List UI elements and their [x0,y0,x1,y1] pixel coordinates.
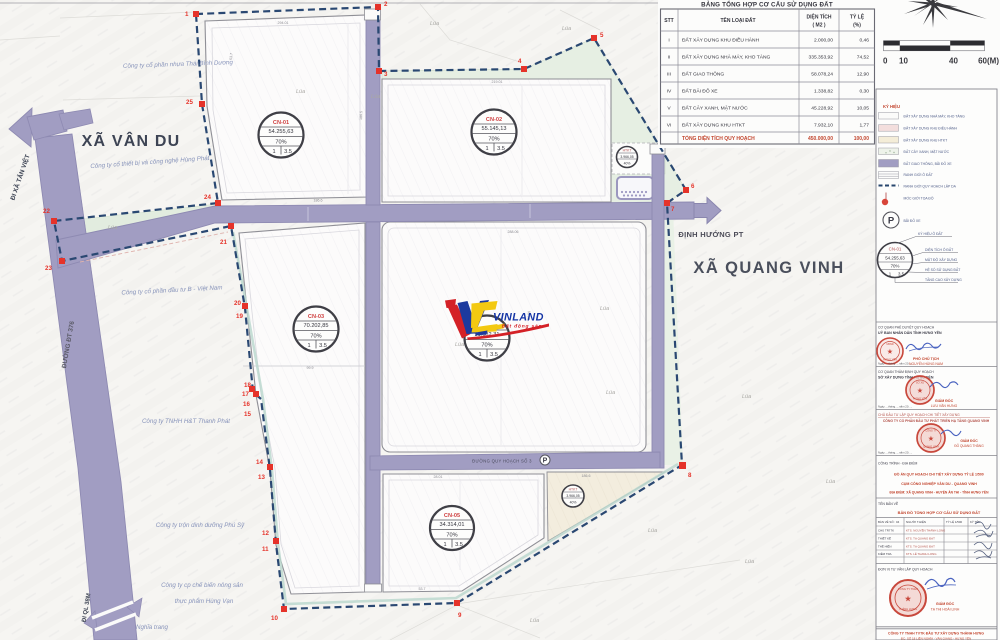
svg-text:ĐẤT XÂY DỰNG NHÀ MÁY, KHO TÀNG: ĐẤT XÂY DỰNG NHÀ MÁY, KHO TÀNG [904,115,966,119]
svg-text:20: 20 [234,300,241,307]
svg-text:70%: 70% [481,343,492,349]
svg-text:VINLAND: VINLAND [493,312,544,324]
svg-text:TÊN LOẠI ĐẤT: TÊN LOẠI ĐẤT [721,16,756,24]
svg-text:II: II [668,55,671,61]
svg-text:KÝ HIỆU: KÝ HIỆU [883,104,900,109]
svg-text:4: 4 [518,58,522,65]
svg-text:ĐỊA ĐIỂM: XÃ QUANG VINH - HUYỆ: ĐỊA ĐIỂM: XÃ QUANG VINH - HUYỆN ÂN THI -… [890,490,990,495]
svg-text:CỤM CÔNG NGHIỆP VÂN DU - QUANG: CỤM CÔNG NGHIỆP VÂN DU - QUANG VINH [901,481,977,486]
svg-text:3.5: 3.5 [898,272,905,277]
svg-text:45.228,92: 45.228,92 [811,106,833,112]
svg-text:ĐỒ ÁN QUY HOẠCH CHI TIẾT XÂY D: ĐỒ ÁN QUY HOẠCH CHI TIẾT XÂY DỰNG TỶ LỆ … [894,472,984,477]
svg-text:ĐẤT GIAO THÔNG: ĐẤT GIAO THÔNG [682,71,724,78]
svg-text:ĐƠN VỊ TƯ VẤN LẬP QUY HOẠCH: ĐƠN VỊ TƯ VẤN LẬP QUY HOẠCH [878,568,933,572]
svg-text:Lúa: Lúa [600,306,609,312]
svg-text:RANH GIỚI Ô ĐẤT: RANH GIỚI Ô ĐẤT [904,172,933,177]
svg-text:3.5: 3.5 [497,146,505,152]
svg-text:BẢN ĐỒ TỔNG HỢP CƠ CẤU SỬ DỤNG: BẢN ĐỒ TỔNG HỢP CƠ CẤU SỬ DỤNG ĐẤT [898,510,981,515]
svg-text:P: P [543,458,548,465]
svg-text:Lúa: Lúa [648,528,657,534]
svg-text:HTKT: HTKT [623,149,632,153]
svg-text:DIỆN TÍCH: DIỆN TÍCH [807,13,832,21]
svg-text:11: 11 [262,546,269,553]
svg-text:Lúa: Lúa [742,394,751,400]
svg-text:60(M): 60(M) [978,57,999,66]
svg-text:ĐỊNH HƯỚNG PT: ĐỊNH HƯỚNG PT [678,230,743,239]
svg-text:Ngày.....tháng.....năm 20.....: Ngày.....tháng.....năm 20..... [878,362,913,366]
svg-text:TỔNG DIỆN TÍCH QUY HOẠCH: TỔNG DIỆN TÍCH QUY HOẠCH [682,134,755,142]
svg-text:9: 9 [458,612,462,619]
svg-text:186.6: 186.6 [582,474,591,478]
svg-text:2: 2 [384,1,388,8]
svg-text:( M2 ): ( M2 ) [812,23,825,29]
svg-text:Công ty trộn dinh dưỡng Phú Sỹ: Công ty trộn dinh dưỡng Phú Sỹ [156,522,245,529]
svg-text:TỶ LỆ 1/500: TỶ LỆ 1/500 [946,519,962,524]
svg-text:Lúa: Lúa [606,390,615,396]
svg-text:MỐC GIỚI TỌA ĐỘ: MỐC GIỚI TỌA ĐỘ [904,196,934,201]
svg-text:0: 0 [883,57,888,66]
svg-text:5: 5 [600,32,604,39]
svg-text:1: 1 [443,542,446,548]
svg-text:TẦNG CAO XÂY DỰNG: TẦNG CAO XÂY DỰNG [925,278,962,282]
svg-text:8: 8 [688,472,692,479]
svg-text:DIỆN TÍCH Ô ĐẤT: DIỆN TÍCH Ô ĐẤT [925,247,953,252]
svg-text:III: III [667,72,671,78]
svg-text:23: 23 [45,265,52,272]
svg-text:MẬT ĐỘ XÂY DỰNG: MẬT ĐỘ XÂY DỰNG [925,257,958,262]
svg-text:100,00: 100,00 [854,136,870,142]
svg-text:16: 16 [243,401,250,408]
svg-text:Lúa: Lúa [530,618,539,624]
svg-text:3.5: 3.5 [490,352,498,358]
svg-text:1: 1 [185,11,189,18]
svg-text:CHỦ ĐẦU TƯ LẬP QUY HOẠCH CHI T: CHỦ ĐẦU TƯ LẬP QUY HOẠCH CHI TIẾT XÂY DỰ… [878,412,960,417]
svg-text:18: 18 [244,382,251,389]
svg-text:ĐẤT XÂY DỰNG KHU ĐIỀU HÀNH: ĐẤT XÂY DỰNG KHU ĐIỀU HÀNH [682,37,760,44]
svg-text:I: I [668,38,669,44]
svg-text:22: 22 [43,208,50,215]
svg-text:15: 15 [244,411,251,418]
svg-text:70%: 70% [310,334,321,340]
svg-text:KIỂM TRA: KIỂM TRA [878,551,892,556]
svg-text:KTS. TẠ QUANG ĐẠT: KTS. TẠ QUANG ĐẠT [906,545,935,549]
svg-text:CƠ QUAN PHÊ DUYỆT QUY HOẠCH: CƠ QUAN PHÊ DUYỆT QUY HOẠCH [878,325,935,330]
svg-text:LƯU VĂN HƯNG: LƯU VĂN HƯNG [931,404,958,408]
svg-text:54.255,63: 54.255,63 [269,129,294,135]
svg-text:34.314,01: 34.314,01 [440,522,465,528]
svg-text:ĐỖ QUANG THẮNG: ĐỖ QUANG THẮNG [954,443,984,448]
svg-text:Ngày.....tháng.....năm 20.....: Ngày.....tháng.....năm 20..... [878,451,913,455]
svg-text:BẢNG TỔNG HỢP CƠ CẤU SỬ DỤNG Đ: BẢNG TỔNG HỢP CƠ CẤU SỬ DỤNG ĐẤT [701,2,833,9]
svg-text:10: 10 [271,615,278,622]
svg-text:HTKT: HTKT [569,488,578,492]
svg-text:Lúa: Lúa [562,26,571,32]
svg-text:21: 21 [220,239,227,246]
svg-text:KTS. NGUYỄN THÀNH LONG: KTS. NGUYỄN THÀNH LONG [906,528,946,533]
svg-text:3.5: 3.5 [284,149,292,155]
svg-text:Lúa: Lúa [745,559,754,565]
svg-text:1: 1 [272,149,275,155]
svg-text:70.202,85: 70.202,85 [304,323,329,329]
svg-text:CN-02: CN-02 [486,117,502,123]
svg-text:2.000,00: 2.000,00 [814,38,833,44]
svg-text:1.338,82: 1.338,82 [814,89,833,95]
svg-text:★: ★ [887,349,893,356]
svg-text:ĐẤT CÂY XANH, MẶT NƯỚC: ĐẤT CÂY XANH, MẶT NƯỚC [682,105,748,112]
svg-text:186.6: 186.6 [314,199,323,203]
svg-text:thực phẩm Hùng Vạn: thực phẩm Hùng Vạn [175,598,234,605]
svg-text:PHÓ CHỦ TỊCH: PHÓ CHỦ TỊCH [913,356,939,361]
svg-text:10: 10 [899,57,908,66]
svg-text:ĐẤT BÃI ĐỖ XE: ĐẤT BÃI ĐỖ XE [682,88,718,95]
svg-text:17: 17 [242,391,249,398]
svg-text:CHỦ TRÌ TK: CHỦ TRÌ TK [878,528,894,533]
svg-text:UỶ BAN NHÂN DÂN TỈNH HƯNG YÊN: UỶ BAN NHÂN DÂN TỈNH HƯNG YÊN [878,330,942,335]
svg-text:TỶ LỆ: TỶ LỆ [850,13,865,21]
svg-text:1: 1 [307,343,310,349]
svg-text:55.145,13: 55.145,13 [482,126,507,132]
svg-text:7: 7 [671,206,675,213]
svg-text:XÃ QUANG VINH: XÃ QUANG VINH [693,257,844,277]
svg-text:XÃ VÂN DU: XÃ VÂN DU [82,130,181,150]
svg-text:13: 13 [258,474,265,481]
svg-text:CÔNG TRÌNH - ĐỊA ĐIỂM: CÔNG TRÌNH - ĐỊA ĐIỂM [878,461,917,466]
svg-text:70%: 70% [275,140,286,146]
svg-text:★: ★ [917,388,923,395]
svg-text:53.7: 53.7 [229,53,233,60]
svg-text:THIẾT KẾ: THIẾT KẾ [878,536,891,541]
svg-text:CN-03: CN-03 [308,314,324,320]
svg-text:25: 25 [186,99,193,106]
svg-text:14: 14 [256,459,263,466]
svg-text:IV: IV [667,89,672,95]
svg-text:RANH GIỚI QUY HOẠCH LẬP DA: RANH GIỚI QUY HOẠCH LẬP DA [904,184,957,189]
svg-text:ĐẤT XÂY DỰNG NHÀ MÁY, KHO TÀNG: ĐẤT XÂY DỰNG NHÀ MÁY, KHO TÀNG [682,54,771,61]
svg-text:CN-01: CN-01 [273,120,289,126]
svg-text:288.06: 288.06 [508,230,519,234]
svg-text:12,90: 12,90 [857,72,870,78]
svg-text:Ngày.....tháng.....năm 20.....: Ngày.....tháng.....năm 20..... [878,405,913,409]
svg-text:THÀNH HƯNG: THÀNH HƯNG [899,607,917,611]
svg-text:CÔNG TY CỔ PHẦN ĐẦU TƯ PHÁT TR: CÔNG TY CỔ PHẦN ĐẦU TƯ PHÁT TRIỂN HẠ TẦN… [883,418,990,423]
svg-text:CÔNG TY: CÔNG TY [925,430,937,433]
svg-text:294.01: 294.01 [278,21,289,25]
svg-text:40%: 40% [624,162,631,166]
svg-text:6: 6 [691,183,695,190]
svg-text:Lúa: Lúa [455,342,464,348]
svg-text:TÊN BẢN VẼ: TÊN BẢN VẼ [878,501,899,506]
svg-text:UBND: UBND [886,342,893,346]
svg-text:70%: 70% [488,137,499,143]
svg-text:74,52: 74,52 [857,55,870,61]
svg-text:VI: VI [667,123,672,129]
svg-text:NGƯỜI T.HIỆN: NGƯỜI T.HIỆN [906,519,926,524]
svg-text:186.5: 186.5 [359,111,363,120]
svg-text:BẢN VẼ SỐ : 04: BẢN VẼ SỐ : 04 [878,519,900,524]
svg-text:STT: STT [664,18,673,24]
svg-text:Nghĩa trang: Nghĩa trang [136,624,169,631]
svg-text:7.932,10: 7.932,10 [814,123,833,129]
svg-text:CƠ QUAN THẨM ĐỊNH QUY HOẠCH: CƠ QUAN THẨM ĐỊNH QUY HOẠCH [878,369,934,374]
svg-text:450.000,00: 450.000,00 [808,136,833,142]
svg-text:KTS. TẠ QUANG ĐẠT: KTS. TẠ QUANG ĐẠT [906,537,935,541]
svg-text:KTS. LÊ THANH LONG: KTS. LÊ THANH LONG [906,551,937,556]
svg-text:ĐẤT CÂY XANH, MẶT NƯỚC: ĐẤT CÂY XANH, MẶT NƯỚC [904,149,950,154]
svg-text:24: 24 [204,194,211,201]
svg-text:3.966,05: 3.966,05 [566,494,579,498]
svg-text:3.5: 3.5 [455,542,463,548]
svg-text:12: 12 [262,530,269,537]
svg-text:TẠ THỊ HOÀI LINH: TẠ THỊ HOÀI LINH [931,608,960,612]
svg-text:335.353,92: 335.353,92 [809,55,834,61]
svg-text:3.966,05: 3.966,05 [620,155,633,159]
svg-text:★: ★ [905,595,912,603]
svg-text:ĐẤT GIAO THÔNG, BÃI ĐỖ XE: ĐẤT GIAO THÔNG, BÃI ĐỖ XE [904,161,953,166]
svg-text:0,30: 0,30 [859,89,869,95]
svg-text:KÝ TÊN: KÝ TÊN [970,519,980,524]
svg-text:28.01: 28.01 [434,475,443,479]
svg-text:(%): (%) [853,23,861,29]
svg-text:ĐC: SỐ 18 LIÊN NGHĨA - VĂN GIA: ĐC: SỐ 18 LIÊN NGHĨA - VĂN GIANG - HƯNG … [901,636,971,640]
svg-text:40: 40 [949,57,958,66]
svg-text:Lúa: Lúa [826,479,835,485]
svg-text:Công ty cp chế biến nông sản: Công ty cp chế biến nông sản [161,582,243,589]
svg-text:219.01: 219.01 [492,80,503,84]
svg-text:54.255,63: 54.255,63 [885,256,905,261]
svg-text:Lúa: Lúa [296,89,305,95]
svg-text:QUANG VINH: QUANG VINH [923,446,939,449]
svg-text:3: 3 [384,71,388,78]
svg-text:GIÁM ĐỐC: GIÁM ĐỐC [960,438,978,443]
svg-text:Lúa: Lúa [108,225,117,231]
svg-text:Công ty TNHH H&T Thanh Phát: Công ty TNHH H&T Thanh Phát [142,418,230,425]
svg-text:Lúa: Lúa [371,94,380,100]
svg-text:53.7: 53.7 [419,587,426,591]
svg-text:70%: 70% [891,264,900,269]
svg-text:CÔNG TY TNHH TVTK ĐẦU TƯ XÂY D: CÔNG TY TNHH TVTK ĐẦU TƯ XÂY DỰNG THÀNH … [888,631,984,636]
svg-text:GIÁM ĐỐC: GIÁM ĐỐC [935,398,954,403]
svg-text:ĐẤT XÂY DỰNG KHU ĐIỀU HÀNH: ĐẤT XÂY DỰNG KHU ĐIỀU HÀNH [904,126,958,131]
svg-text:99.9: 99.9 [307,366,314,370]
svg-text:Lúa: Lúa [430,21,439,27]
svg-text:P: P [888,216,895,227]
svg-text:ĐẤT XÂY DỰNG KHU HTKT: ĐẤT XÂY DỰNG KHU HTKT [904,139,948,143]
svg-text:KÝ HIỆU Ô ĐẤT: KÝ HIỆU Ô ĐẤT [918,231,943,236]
svg-text:10,05: 10,05 [857,106,870,112]
svg-text:BÃI ĐỖ XE: BÃI ĐỖ XE [904,218,922,223]
svg-text:58.078,24: 58.078,24 [811,72,833,78]
svg-text:70%: 70% [446,533,457,539]
svg-text:THỂ HIỆN: THỂ HIỆN [878,544,892,549]
svg-text:HỆ SỐ SỬ DỤNG ĐẤT: HỆ SỐ SỬ DỤNG ĐẤT [925,267,960,272]
svg-text:ĐẤT XÂY DỰNG KHU HTKT: ĐẤT XÂY DỰNG KHU HTKT [682,122,745,129]
svg-text:GIÁM ĐỐC: GIÁM ĐỐC [936,601,955,606]
svg-text:★: ★ [928,436,934,443]
svg-text:NGUYỄN HÙNG NAM: NGUYỄN HÙNG NAM [909,361,943,366]
svg-text:19: 19 [236,313,243,320]
svg-text:ĐƯỜNG QUY HOẠCH SỐ 3: ĐƯỜNG QUY HOẠCH SỐ 3 [472,459,532,464]
svg-text:3.5: 3.5 [319,343,327,349]
svg-text:1: 1 [478,352,481,358]
svg-text:CN-01: CN-01 [889,247,902,252]
svg-text:1,77: 1,77 [859,123,869,129]
svg-text:0,46: 0,46 [859,38,869,44]
svg-text:40%: 40% [570,501,577,505]
svg-text:CN-05: CN-05 [444,513,460,519]
svg-text:1: 1 [485,146,488,152]
